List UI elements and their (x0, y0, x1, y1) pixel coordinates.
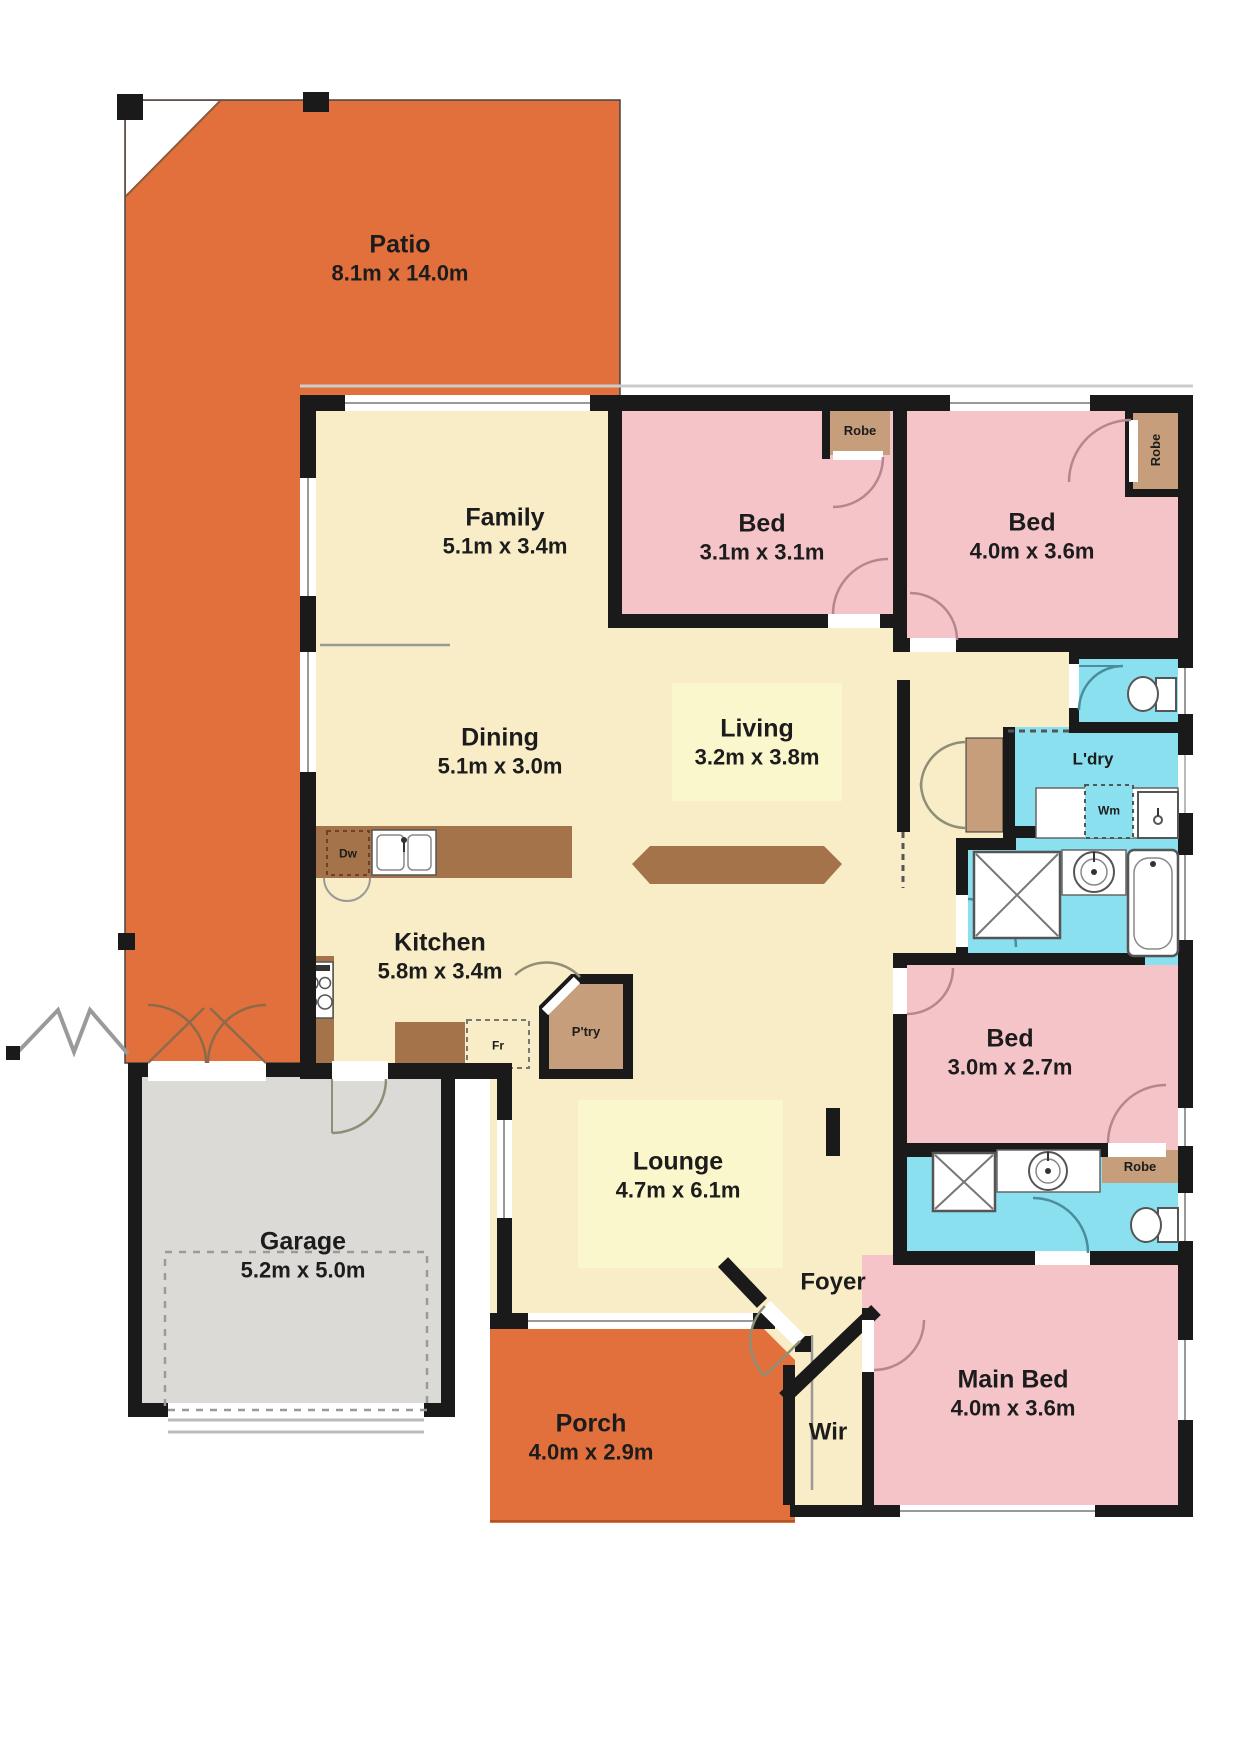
boundary-fence (6, 1010, 128, 1060)
ensuite-toilet-icon (1131, 1208, 1178, 1242)
robe-label-bed3: Robe (1148, 434, 1164, 467)
fridge-label: Fr (492, 1039, 504, 1054)
robe-label-bed4: Robe (1124, 1159, 1157, 1175)
dishwasher-label: Dw (339, 847, 357, 862)
room-label-laundry: L'dry (1073, 750, 1114, 771)
room-label-wir: Wir (809, 1417, 847, 1446)
pantry-label: P'try (572, 1024, 600, 1040)
room-label-foyer: Foyer (800, 1267, 865, 1296)
linen-cupboard (966, 738, 1003, 832)
shower-icon (974, 852, 1060, 938)
vanity-sink-icon (1062, 850, 1126, 895)
laundry-trough-icon (1138, 792, 1178, 838)
patio-post (118, 933, 135, 950)
room-label-dining: Dining 5.1m x 3.0m (438, 722, 563, 779)
robe-label-bed2: Robe (844, 423, 877, 439)
room-label-kitchen: Kitchen 5.8m x 3.4m (378, 927, 503, 984)
room-label-family: Family 5.1m x 3.4m (443, 502, 568, 559)
island-bench (632, 846, 842, 884)
bathtub-icon (1128, 850, 1178, 956)
wc-fixtures (1128, 677, 1176, 711)
room-label-bed4: Bed 3.0m x 2.7m (948, 1023, 1073, 1080)
room-label-bed2: Bed 3.1m x 3.1m (700, 508, 825, 565)
ensuite-sink-icon (997, 1150, 1100, 1192)
washing-machine-label: Wm (1098, 804, 1120, 819)
floor-plan-drawing (0, 0, 1240, 1754)
room-label-main-bed: Main Bed 4.0m x 3.6m (951, 1364, 1076, 1421)
room-label-bed3: Bed 4.0m x 3.6m (970, 507, 1095, 564)
room-label-porch: Porch 4.0m x 2.9m (529, 1408, 654, 1465)
ensuite-shower-icon (933, 1153, 995, 1211)
patio-post (117, 94, 143, 120)
room-label-patio: Patio 8.1m x 14.0m (332, 229, 469, 286)
toilet-icon (1128, 677, 1176, 711)
room-label-living: Living 3.2m x 3.8m (695, 713, 820, 770)
room-label-garage: Garage 5.2m x 5.0m (241, 1226, 366, 1283)
room-label-lounge: Lounge 4.7m x 6.1m (616, 1146, 741, 1203)
floor-plan: Patio 8.1m x 14.0m Family 5.1m x 3.4m Be… (0, 0, 1240, 1754)
patio-post (303, 92, 329, 112)
kitchen-sink-icon (372, 830, 436, 875)
kitchen-cabinet (395, 1022, 465, 1068)
